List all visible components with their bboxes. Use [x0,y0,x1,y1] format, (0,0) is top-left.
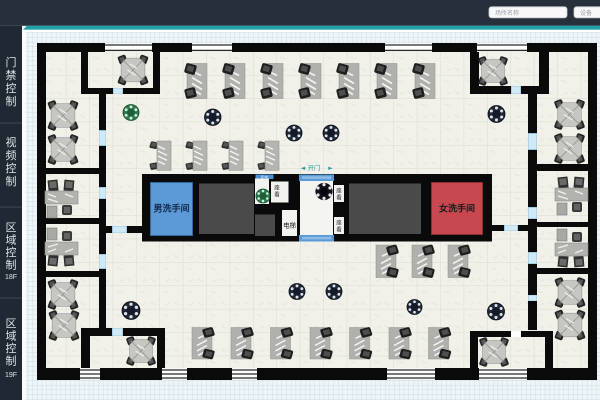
svg-text:男洗手间: 男洗手间 [153,203,189,214]
svg-text:座: 座 [336,219,342,227]
svg-text:座: 座 [274,184,280,192]
svg-text:制: 制 [6,95,17,108]
svg-text:看: 看 [274,191,280,199]
svg-text:18F: 18F [5,274,17,281]
svg-text:19F: 19F [5,372,17,379]
svg-text:控: 控 [6,161,17,175]
svg-text:频: 频 [6,148,17,162]
svg-text:座: 座 [336,187,342,195]
svg-text:制: 制 [6,175,17,188]
svg-text:看: 看 [336,226,342,234]
svg-text:视: 视 [6,135,17,149]
svg-text:控: 控 [6,245,17,259]
svg-text:开门: 开门 [308,165,320,173]
svg-text:区: 区 [6,222,17,234]
svg-text:女洗手间: 女洗手间 [439,203,475,214]
svg-text:禁: 禁 [6,69,17,82]
svg-text:电梯: 电梯 [283,221,296,230]
svg-text:控: 控 [6,81,17,95]
svg-text:看: 看 [336,194,342,202]
svg-text:域: 域 [6,330,17,343]
svg-text:域: 域 [6,234,17,247]
svg-text:设备: 设备 [580,9,592,17]
svg-text:制: 制 [6,259,17,272]
svg-text:门: 门 [6,55,17,69]
svg-text:控: 控 [6,341,17,355]
svg-text:场所名称: 场所名称 [495,9,519,17]
svg-text:区: 区 [6,318,17,330]
svg-text:制: 制 [6,355,17,368]
